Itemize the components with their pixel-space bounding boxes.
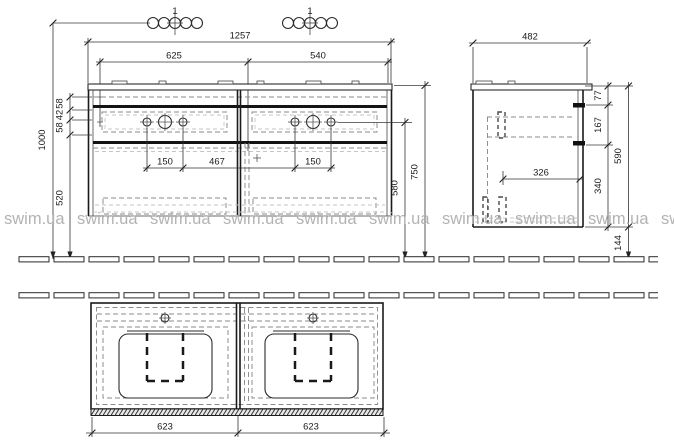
dim-total-height: 1000 xyxy=(36,130,47,151)
dim-holes-left: 150 xyxy=(157,156,173,167)
watermark-text: swim.ua xyxy=(369,210,430,228)
dim-front-left-span: 625 xyxy=(166,50,182,61)
front-faucet-holes xyxy=(140,113,338,131)
floor-line xyxy=(18,256,658,263)
plan-width-dimensions: 623 623 xyxy=(86,416,390,437)
watermark-text: swim.ua xyxy=(296,210,357,228)
dim-holes-height: 580 xyxy=(389,180,400,196)
faucet-symbol-right-icon: 1 xyxy=(283,5,338,35)
dim-lower-height: 520 xyxy=(54,190,65,206)
side-right-dimensions: 77 167 340 590 144 xyxy=(585,82,633,259)
dim-side-floor-clearance: 144 xyxy=(612,235,623,251)
watermark-text: swim.ua xyxy=(223,210,284,228)
plan-front-edge-hatch xyxy=(91,409,383,416)
watermark-text: swim.ua xyxy=(515,210,576,228)
dim-plan-left-width: 623 xyxy=(157,421,173,432)
dim-front-overall: 1257 xyxy=(230,30,251,41)
dim-holes-right: 150 xyxy=(305,156,321,167)
dim-side-handle-spacing: 167 xyxy=(592,117,603,133)
watermark-text: swim.ua xyxy=(150,210,211,228)
dim-seg-mid: 42 xyxy=(54,110,65,120)
plan-view: 623 623 xyxy=(86,303,390,437)
watermark-text: swim.ua xyxy=(588,210,649,228)
drawing-page: 1 1 1257 625 540 xyxy=(0,0,674,445)
dim-seg-bot: 58 xyxy=(54,122,65,132)
dim-seg-top: 58 xyxy=(54,98,65,108)
dim-side-inner-depth: 326 xyxy=(533,167,549,178)
side-inner-depth-dimension: 326 xyxy=(500,167,584,186)
dim-counter-height: 750 xyxy=(409,164,420,180)
side-countertop xyxy=(471,81,592,90)
side-handle-bottom xyxy=(573,141,585,146)
front-hole-dimensions: 150 467 150 xyxy=(143,128,335,172)
faucet-label-left: 1 xyxy=(172,5,177,16)
dim-side-lower-offset: 340 xyxy=(592,178,603,194)
side-handle-top xyxy=(573,103,585,108)
dim-side-body-height: 590 xyxy=(612,148,623,164)
technical-drawing: 1 1 1257 625 540 xyxy=(0,0,674,445)
side-cabinet-body xyxy=(473,90,585,227)
watermark-text: swim.ua xyxy=(661,210,674,228)
dim-side-depth: 482 xyxy=(522,31,538,42)
dim-holes-gap: 467 xyxy=(209,156,225,167)
watermark-band: swim.ua swim.ua swim.ua swim.ua swim.ua … xyxy=(4,210,674,228)
watermark-text: swim.ua xyxy=(77,210,138,228)
dim-plan-right-width: 623 xyxy=(303,421,319,432)
watermark-text: swim.ua xyxy=(442,210,503,228)
dim-side-top-offset: 77 xyxy=(592,90,603,100)
side-depth-dimension: 482 xyxy=(469,31,591,84)
wall-line xyxy=(18,292,658,299)
front-countertop xyxy=(88,81,392,90)
faucet-label-right: 1 xyxy=(307,5,312,16)
faucet-symbol-left-icon: 1 xyxy=(50,5,203,35)
watermark-text: swim.ua xyxy=(4,210,65,228)
dim-front-right-span: 540 xyxy=(310,50,326,61)
front-cabinet-body xyxy=(88,90,392,216)
